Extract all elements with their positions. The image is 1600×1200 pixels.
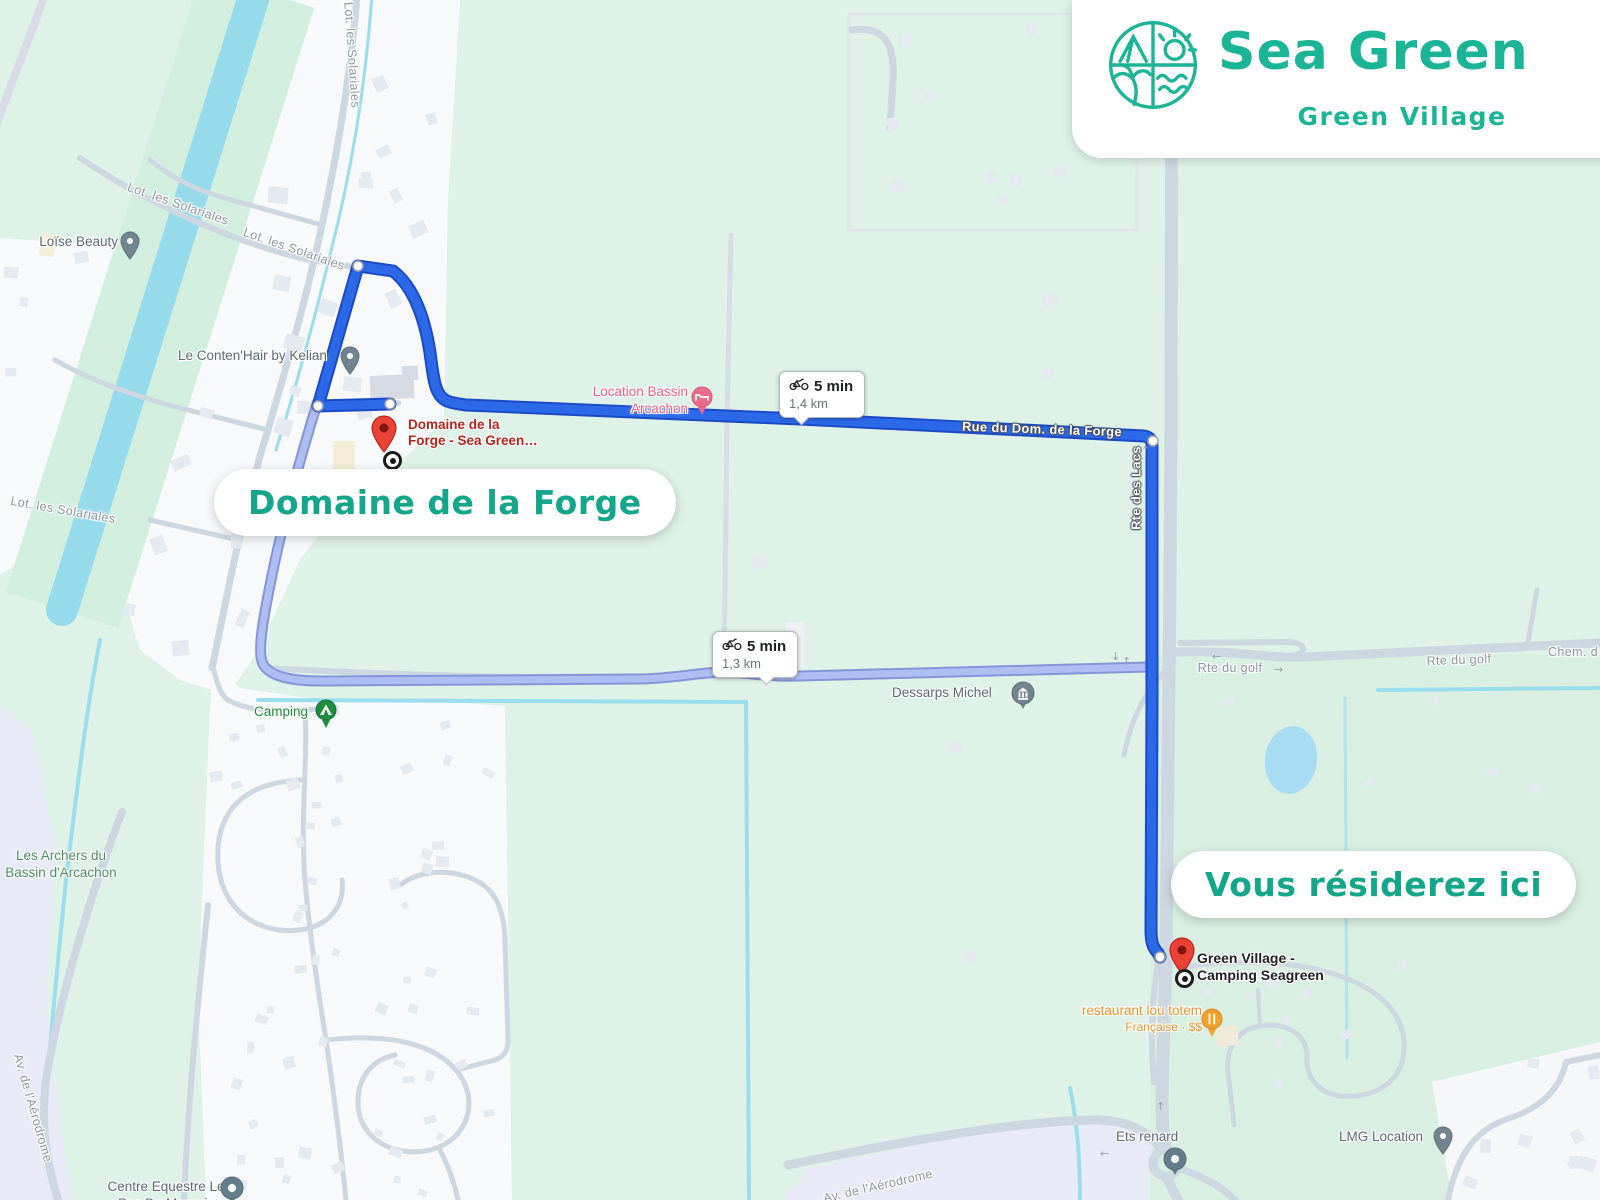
map-canvas[interactable]: ↑ ↓ ↑ ← → ↑ ← Lot. les Solariales Lot. l…: [0, 0, 1600, 1200]
route-endpoint-icon: [1175, 969, 1194, 988]
brand-card: Sea Green Green Village: [1072, 0, 1600, 158]
circle-pin-ets-renard[interactable]: [1163, 1147, 1187, 1183]
bicycle-icon: [722, 637, 742, 655]
badge-distance: 1,3 km: [722, 656, 786, 671]
sea-green-logo-icon: [1106, 18, 1200, 117]
circle-pin-centre-equestre[interactable]: [220, 1176, 244, 1200]
route-badge-primary[interactable]: 5 min 1,4 km: [779, 371, 865, 418]
orange-pin-restaurant-icon[interactable]: [1200, 1008, 1224, 1045]
route-badge-alternative[interactable]: 5 min 1,3 km: [712, 631, 798, 678]
pink-pin-lodging-icon[interactable]: [690, 386, 714, 423]
green-pin-camping-icon[interactable]: [314, 699, 338, 736]
origin-callout: Domaine de la Forge: [214, 469, 676, 536]
badge-time: 5 min: [814, 378, 853, 395]
gray-pin-lmg[interactable]: [1433, 1126, 1453, 1160]
destination-callout: Vous résiderez ici: [1171, 851, 1576, 918]
badge-distance: 1,4 km: [789, 396, 853, 411]
bicycle-icon: [789, 377, 809, 395]
gray-pin-kelian[interactable]: [340, 346, 360, 380]
gray-pin-loise[interactable]: [120, 231, 140, 265]
brand-name: Sea Green: [1218, 22, 1529, 82]
map-terrain: [0, 0, 1600, 1200]
route-endpoint-icon: [383, 451, 402, 470]
circle-pin-dessarps-bank-icon[interactable]: [1011, 681, 1035, 717]
badge-time: 5 min: [747, 638, 786, 655]
brand-subtitle: Green Village: [1222, 102, 1582, 131]
